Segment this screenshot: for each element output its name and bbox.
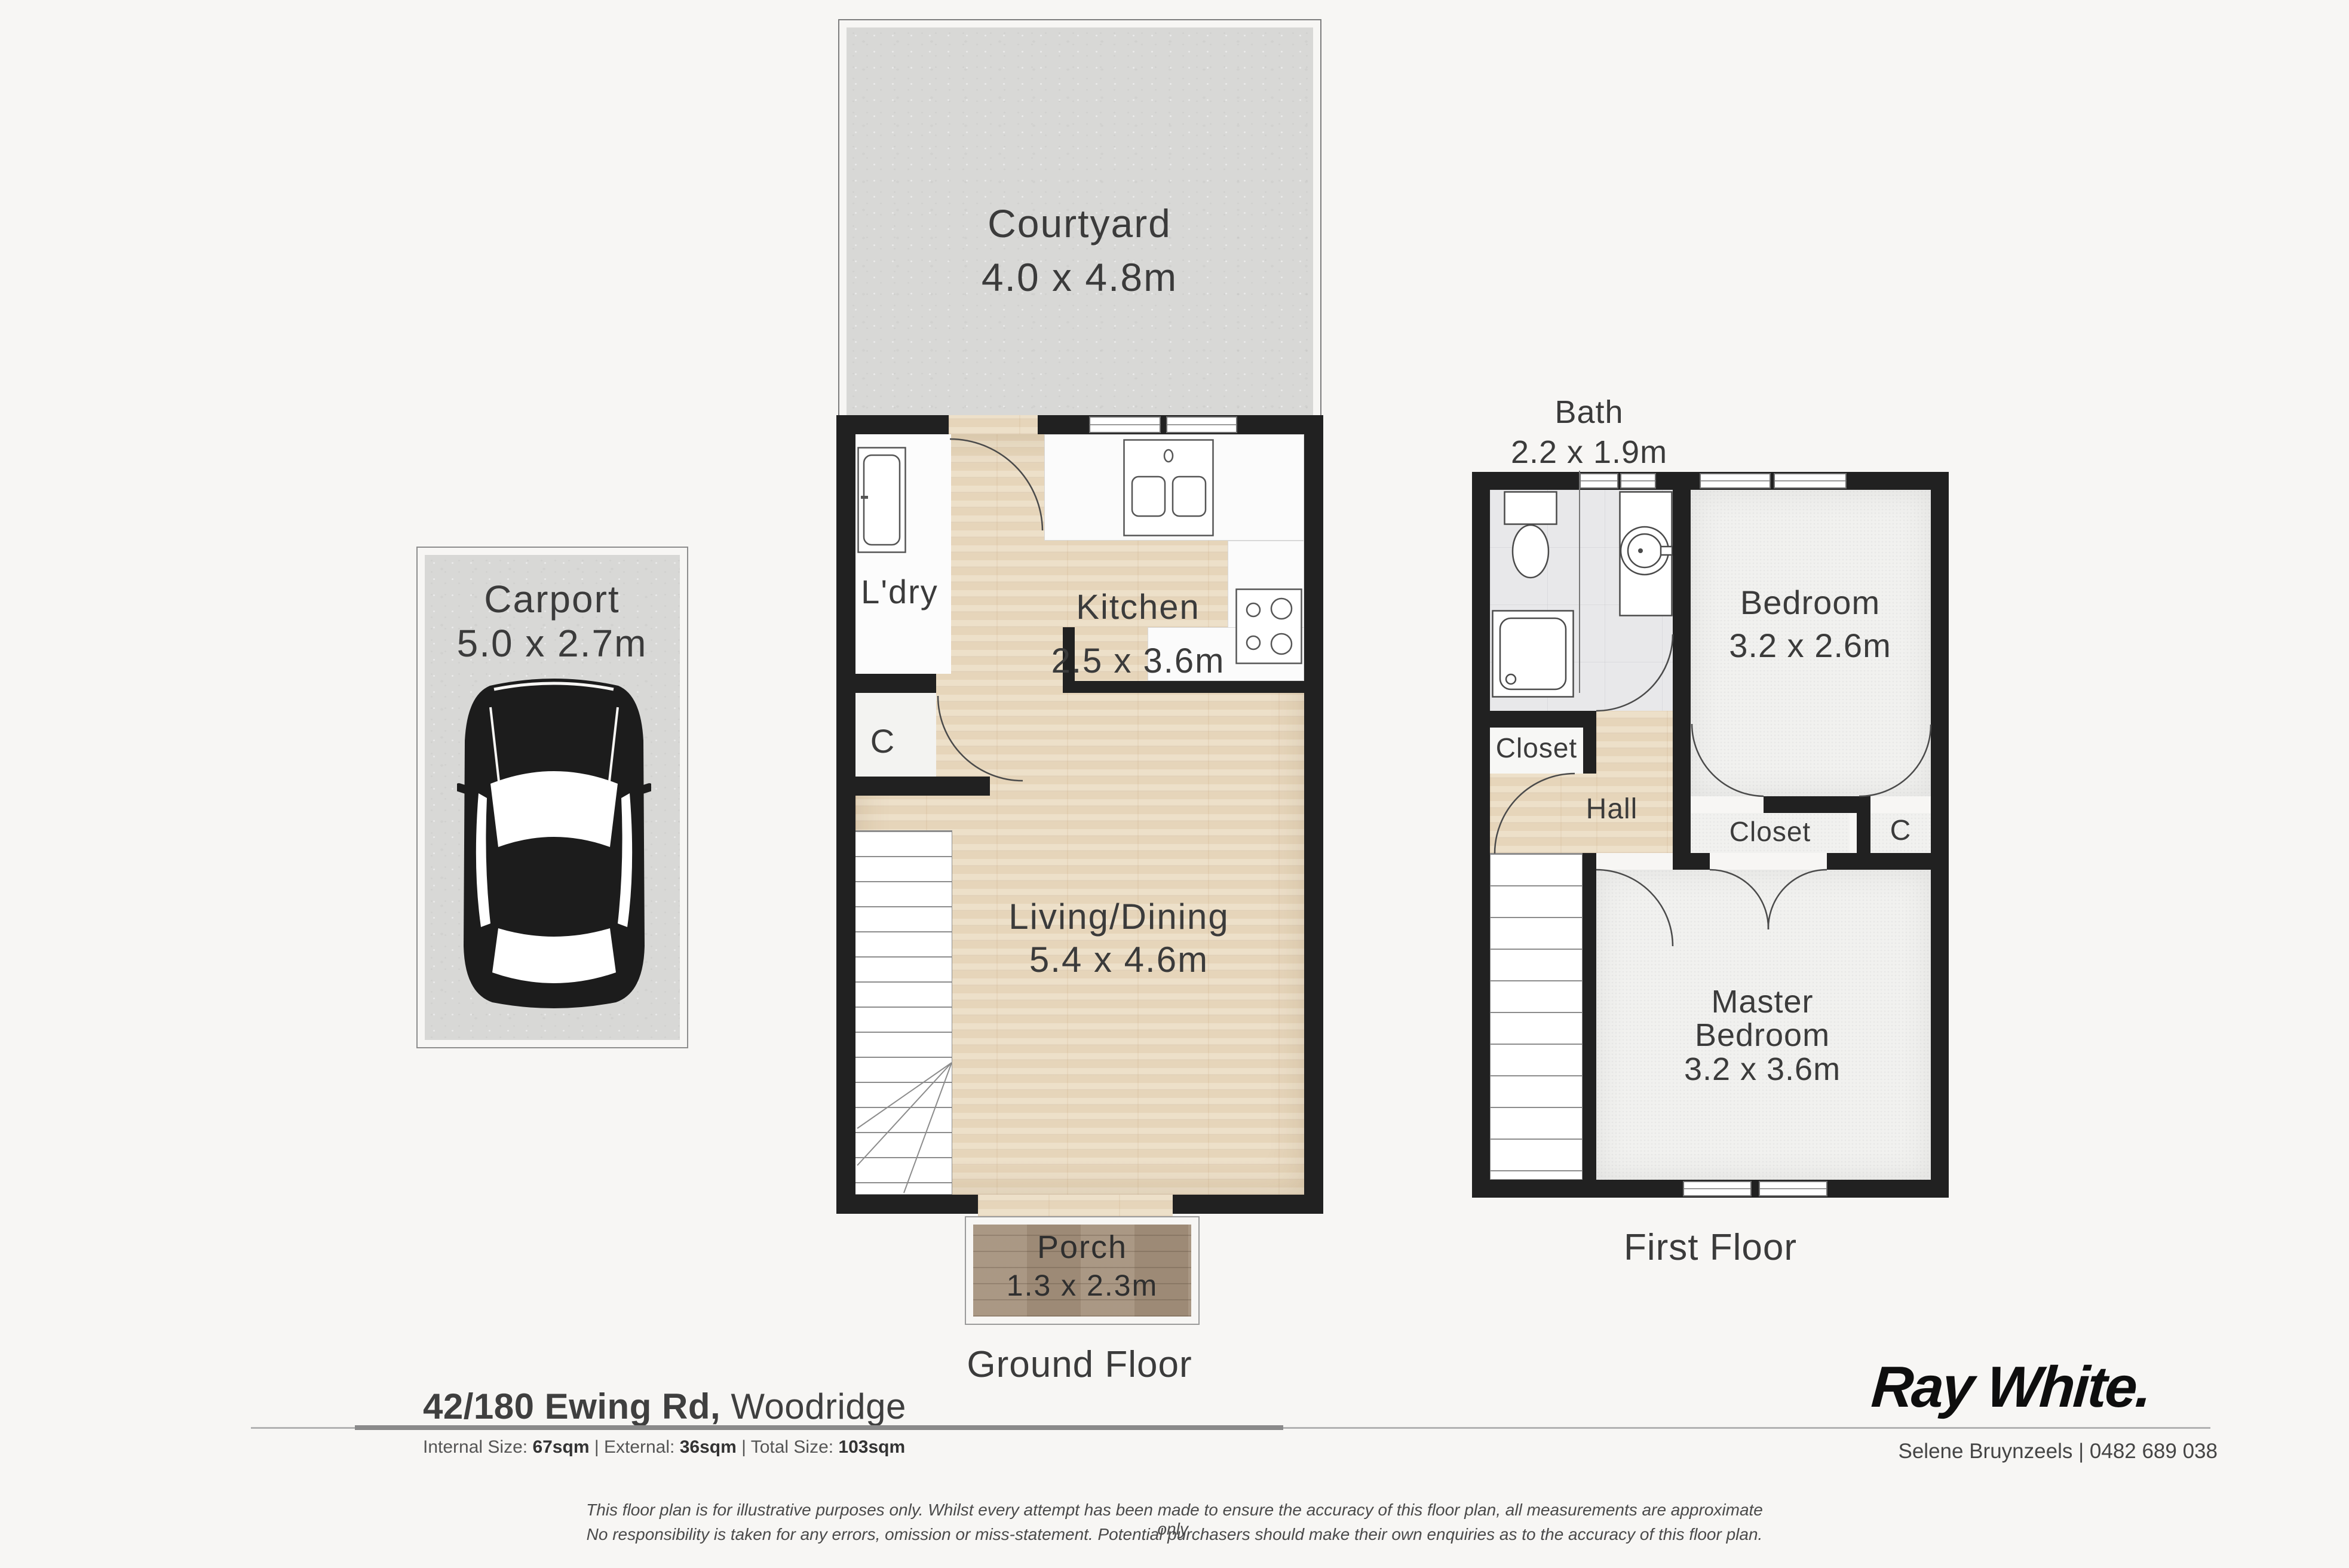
bedroom-window-2: [1774, 473, 1847, 489]
disclaimer-line-2: No responsibility is taken for any error…: [577, 1525, 1772, 1544]
porch-label: Porch: [965, 1231, 1200, 1265]
closet-south-wall-stub-left: [1691, 853, 1710, 870]
courtyard-label: Courtyard: [930, 203, 1229, 244]
footer-rule-accent: [355, 1425, 1283, 1430]
ground-stairs: [854, 830, 952, 1195]
property-address: 42/180 Ewing Rd, Woodridge: [423, 1386, 1259, 1427]
courtyard-door-opening: [949, 415, 1038, 434]
first-closet-left-label: Closet: [1477, 734, 1596, 762]
washing-machine-icon: [857, 447, 906, 553]
basin-icon: [1619, 491, 1673, 616]
ground-floor-title: Ground Floor: [930, 1345, 1229, 1384]
hall-label: Hall: [1552, 794, 1672, 824]
agent-contact: Selene Bruynzeels | 0482 689 038: [1740, 1440, 2218, 1463]
bedroom-south-wall: [1764, 796, 1857, 813]
kitchen-wall-stub-horizontal: [1063, 681, 1304, 693]
address-suburb: Woodridge: [720, 1386, 906, 1426]
first-floor-title: First Floor: [1561, 1228, 1860, 1267]
porch-dimensions: 1.3 x 2.3m: [965, 1270, 1200, 1302]
bedroom-dimensions: 3.2 x 2.6m: [1691, 628, 1930, 664]
internal-size-label: Internal Size:: [423, 1437, 532, 1457]
external-size-value: 36sqm: [680, 1437, 737, 1457]
bath-bedroom-wall: [1673, 490, 1691, 870]
address-street: 42/180 Ewing Rd,: [423, 1386, 720, 1426]
separator: |: [737, 1437, 751, 1457]
shower-icon: [1492, 610, 1574, 698]
master-window-2: [1759, 1181, 1827, 1196]
master-bedroom-label-line1: Master: [1613, 985, 1912, 1019]
living-dining-label: Living/Dining: [970, 898, 1268, 935]
kitchen-label: Kitchen: [1019, 590, 1258, 626]
master-window-1: [1683, 1181, 1752, 1196]
closet-south-wall-stub-right: [1827, 853, 1857, 870]
bath-dimensions: 2.2 x 1.9m: [1470, 435, 1709, 470]
kitchen-window-1: [1089, 416, 1161, 433]
master-bedroom-label-line2: Bedroom: [1613, 1018, 1912, 1053]
first-wall-right: [1931, 472, 1949, 1198]
ground-wall-right: [1304, 415, 1323, 1214]
left-closet-north-wall: [1490, 711, 1596, 728]
separator: |: [590, 1437, 604, 1457]
carport-dimensions: 5.0 x 2.7m: [403, 624, 701, 664]
ground-wall-top: [836, 415, 1323, 434]
ground-closet-wall-bottom: [855, 777, 990, 796]
first-closet-small-label: C: [1870, 816, 1931, 846]
total-size-label: Total Size:: [751, 1437, 839, 1457]
ground-closet-wall-top: [855, 674, 936, 693]
hall-floor-strip: [1596, 711, 1673, 853]
toilet-icon: [1504, 491, 1557, 581]
bath-window-1: [1580, 473, 1618, 489]
bath-label: Bath: [1470, 395, 1709, 429]
small-closet-south-wall: [1870, 853, 1931, 870]
ray-white-logo: Ray White.: [1869, 1354, 2233, 1420]
external-size-label: External:: [604, 1437, 680, 1457]
double-sink-icon: [1123, 439, 1214, 536]
first-floor-stairs: [1490, 853, 1583, 1180]
living-dining-dimensions: 5.4 x 4.6m: [970, 941, 1268, 978]
carport-label: Carport: [403, 579, 701, 619]
size-summary: Internal Size: 67sqm | External: 36sqm |…: [423, 1437, 1319, 1457]
total-size-value: 103sqm: [838, 1437, 905, 1457]
master-bedroom-dimensions: 3.2 x 3.6m: [1613, 1053, 1912, 1087]
bedroom-label: Bedroom: [1691, 585, 1930, 621]
internal-size-value: 67sqm: [532, 1437, 589, 1457]
kitchen-dimensions: 2.5 x 3.6m: [1019, 643, 1258, 680]
kitchen-window-2: [1166, 416, 1237, 433]
laundry-label: L'dry: [840, 575, 959, 610]
bedroom-window-1: [1700, 473, 1771, 489]
first-wall-left: [1472, 472, 1490, 1198]
bath-window-2: [1620, 473, 1656, 489]
floorplan-page: Courtyard 4.0 x 4.8m Carport 5.0 x 2.7m: [0, 0, 2349, 1568]
porch-door-opening: [978, 1195, 1173, 1216]
stairs-master-wall: [1583, 853, 1596, 1180]
stairs-run-lines: [855, 831, 953, 1195]
car-top-view-icon: [457, 670, 651, 1015]
ground-wall-left: [836, 415, 855, 1214]
ground-closet-label: C: [853, 724, 913, 759]
first-closet-middle-label: Closet: [1681, 817, 1860, 846]
courtyard-dimensions: 4.0 x 4.8m: [930, 257, 1229, 298]
